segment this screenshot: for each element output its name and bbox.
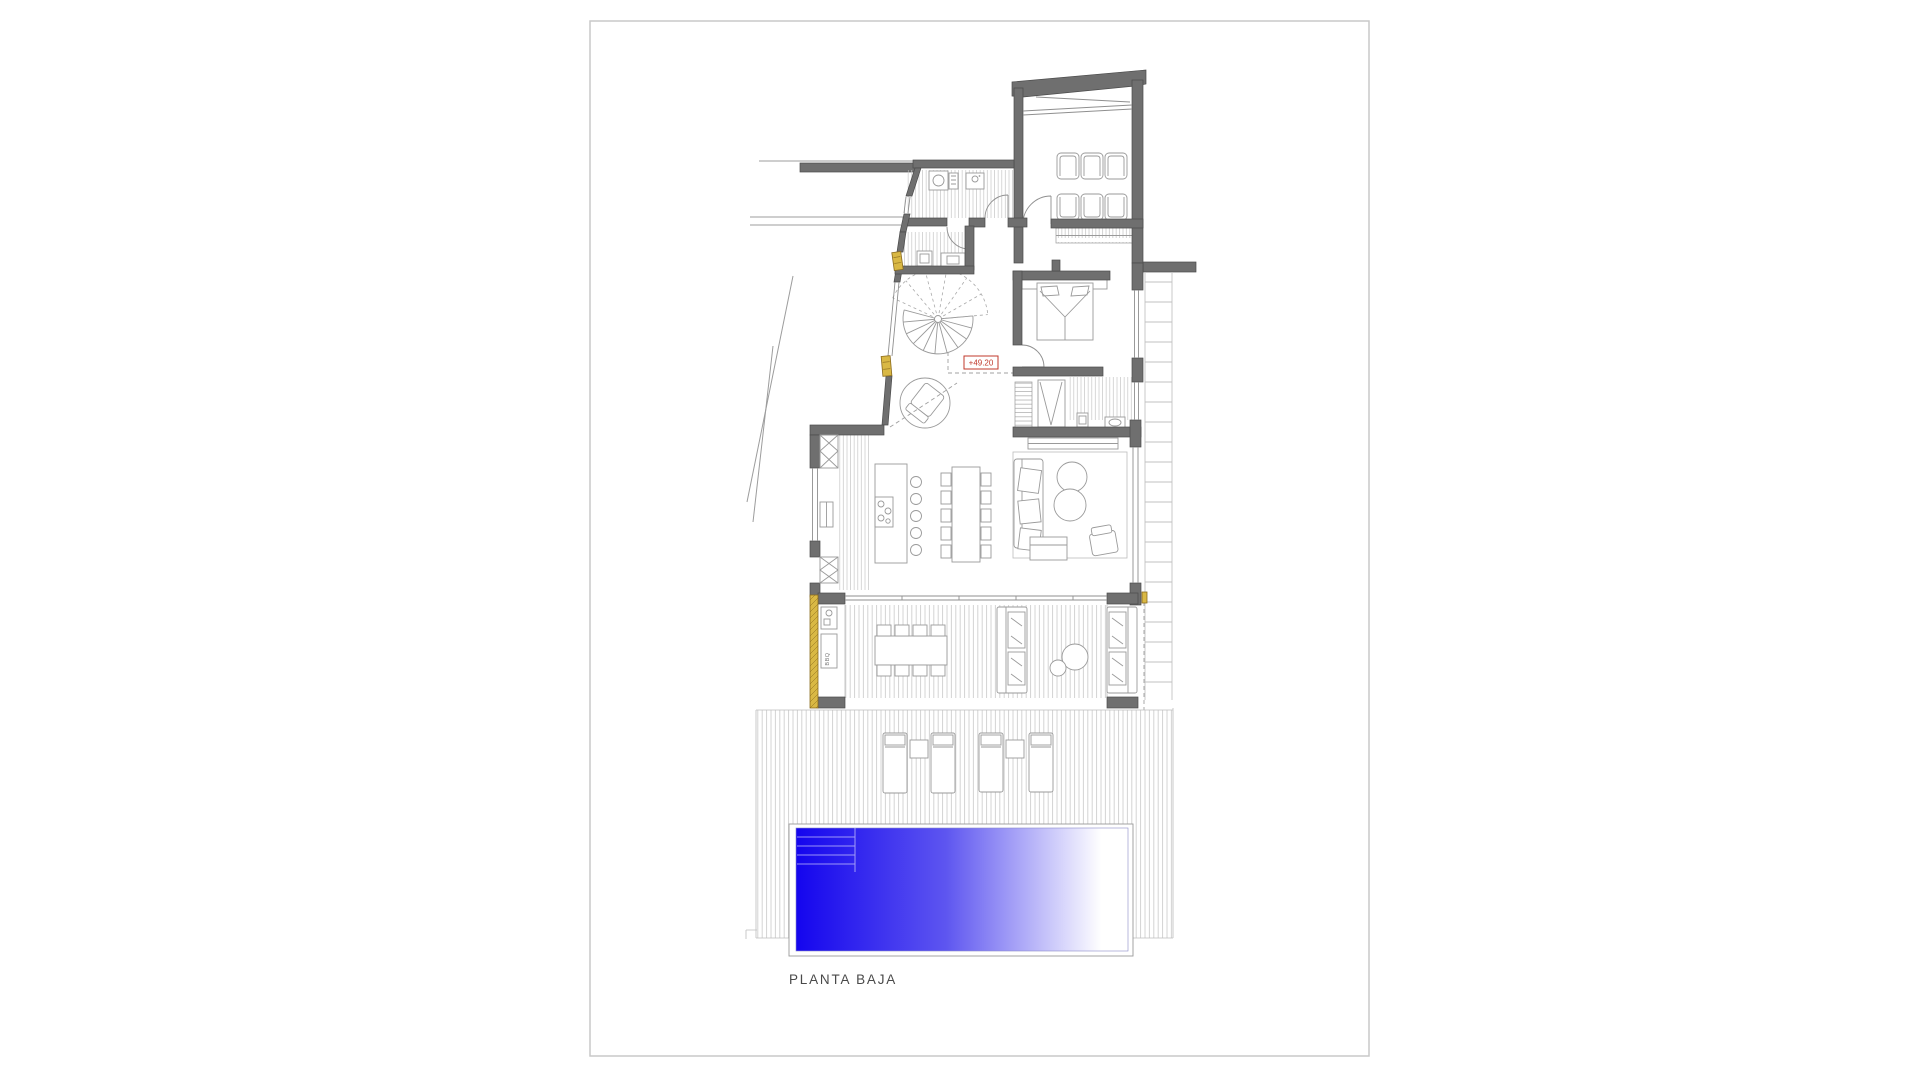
swimming-pool <box>789 824 1133 956</box>
kitchen-counter <box>838 435 870 590</box>
wardrobe-rail <box>1056 228 1133 243</box>
side-table <box>1006 740 1024 758</box>
washer-icon <box>929 171 958 190</box>
level-annotation: +49.20 <box>964 356 998 369</box>
vanity-icon <box>941 253 965 267</box>
plan-title: PLANTA BAJA <box>789 972 897 987</box>
shower-shelves <box>1015 382 1032 427</box>
side-table <box>1050 660 1066 676</box>
level-label: +49.20 <box>969 359 994 368</box>
dining-table <box>941 467 991 562</box>
kitchen-island <box>875 464 907 563</box>
sink-icon <box>1105 417 1125 428</box>
exterior-steps-hatch <box>1145 273 1172 700</box>
toilet-icon <box>917 251 932 266</box>
sideboard <box>1028 438 1118 449</box>
sink-icon <box>966 173 984 189</box>
toilet-icon <box>1077 413 1088 427</box>
outdoor-sofa-icon <box>1107 607 1137 693</box>
floor-plan-page: +49.20 BBQ PLANTA BAJA <box>0 0 1920 1080</box>
bbq-label: BBQ <box>825 652 831 665</box>
coffee-table <box>1057 462 1087 492</box>
side-table <box>910 740 928 758</box>
coffee-table <box>1054 489 1086 521</box>
outdoor-sofa-icon <box>997 607 1027 693</box>
